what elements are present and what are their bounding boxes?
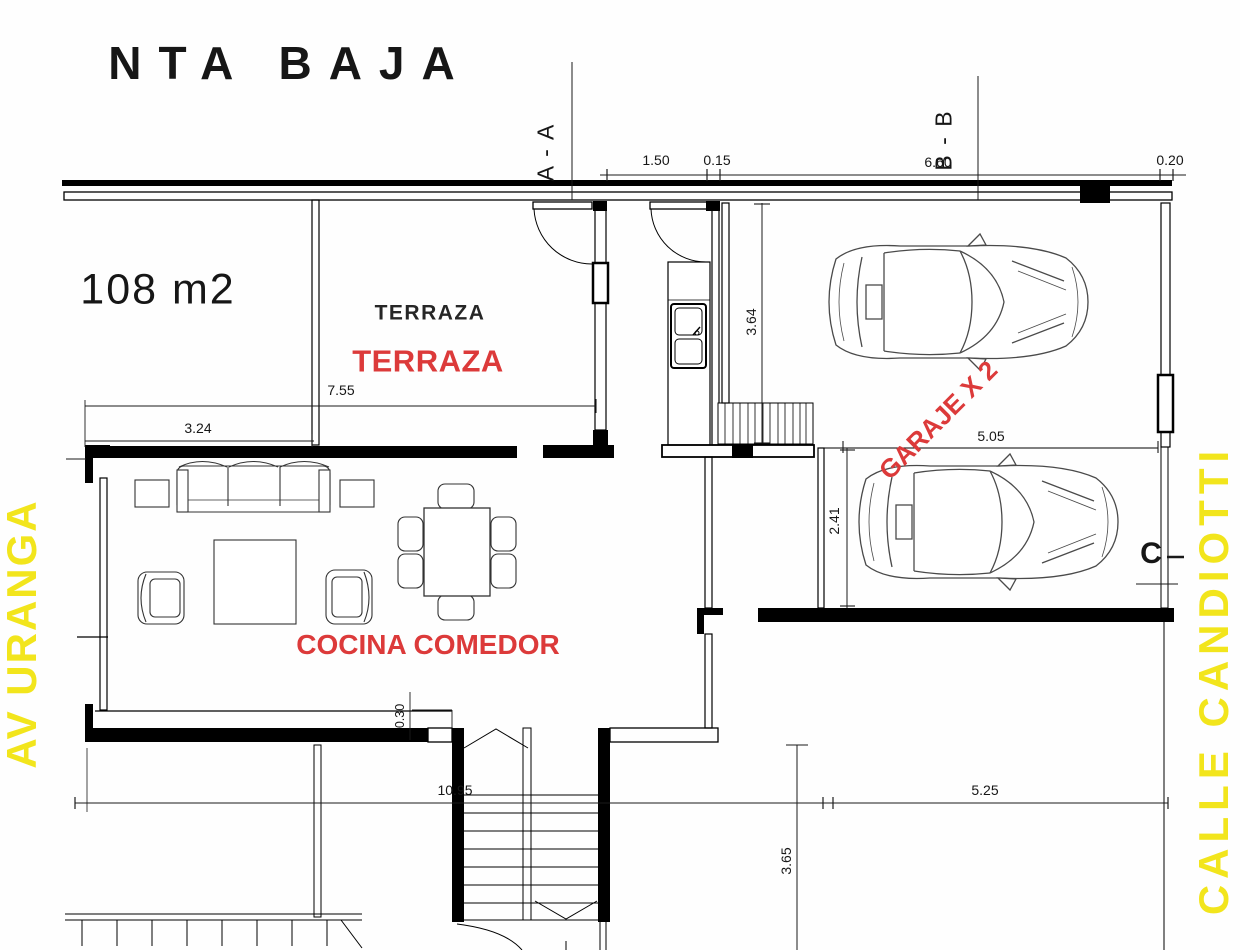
cocina-comedor-label: COCINA COMEDOR: [296, 631, 559, 659]
dim-top-1: 1.50: [642, 153, 669, 167]
entry-doors: [533, 201, 720, 264]
sofa: [177, 462, 330, 513]
dim-terraza-width: 7.55: [327, 383, 354, 397]
coffee-table: [214, 540, 296, 624]
dim-top-4: 0.20: [1156, 153, 1183, 167]
car-1: [829, 234, 1088, 370]
dim-wall-offset: 0.30: [394, 704, 407, 728]
floor-plan: NTA BAJA A - A B - B 1.50 0.15 6.60 0.20…: [0, 0, 1240, 950]
dim-garage-width: 5.05: [977, 429, 1004, 443]
dim-driveway-depth: 3.65: [779, 847, 793, 874]
dim-top-3: 6.60: [924, 155, 951, 169]
plan-title: NTA BAJA: [108, 40, 471, 86]
street-label-right: CALLE CANDIOTTI: [1193, 445, 1235, 915]
dim-bottom-width: 10.95: [437, 783, 472, 797]
outer-walls: [62, 180, 1172, 203]
dim-terraza-left: 3.24: [184, 421, 211, 435]
street-label-left: AV URANGA: [1, 499, 43, 768]
section-marker-c: C: [1140, 539, 1162, 569]
armchair-right: [326, 570, 372, 624]
section-marker-aa: A - A: [535, 123, 558, 182]
terraza-caption: TERRAZA: [375, 303, 486, 324]
terraza-label: TERRAZA: [352, 346, 504, 377]
floor-plan-drawing: [0, 0, 1240, 950]
kitchen-sink-icon: [671, 304, 706, 368]
dining-set: [398, 484, 516, 620]
armchair-left: [138, 572, 184, 624]
staircase: [452, 728, 610, 950]
area-label: 108 m2: [80, 269, 235, 312]
dim-bay-depth: 2.41: [827, 507, 841, 534]
dim-top-2: 0.15: [703, 153, 730, 167]
dim-driveway-width: 5.25: [971, 783, 998, 797]
dim-garage-depth: 3.64: [744, 308, 758, 335]
front-terrace-edge: [65, 745, 362, 948]
